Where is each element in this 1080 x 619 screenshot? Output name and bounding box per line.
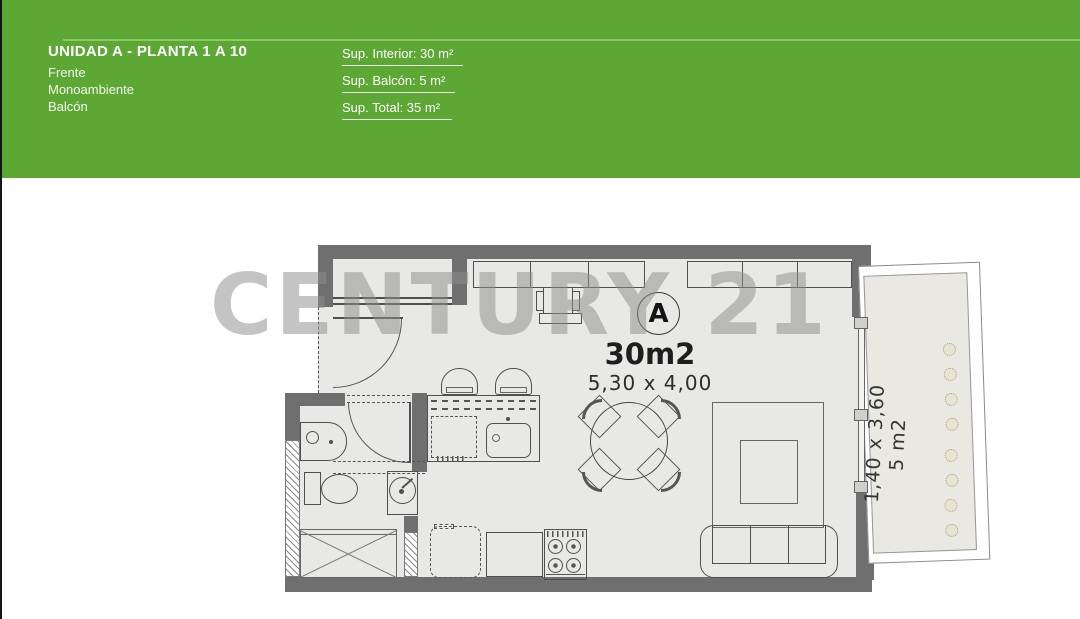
sofa-seat-divider — [788, 526, 789, 563]
coffee-table — [740, 440, 798, 504]
bidet-tap-dot — [329, 440, 333, 444]
feature-monoambiente: Monoambiente — [48, 81, 134, 98]
entry-boundary-dashed — [318, 307, 319, 393]
fridge-handle — [434, 524, 454, 529]
island-vent-grill — [437, 456, 464, 462]
unit-features: Frente Monoambiente Balcón — [48, 64, 134, 115]
stove-grate — [547, 531, 584, 537]
dining-table — [590, 402, 668, 480]
toilet-bowl — [321, 474, 358, 504]
wall-entry-left-stub — [318, 245, 333, 307]
wardrobe-divider — [530, 262, 531, 287]
desk-chair-armrest — [572, 291, 580, 311]
bath-doorway-dashed — [347, 395, 410, 396]
floor-plan-page: { "header": { "title": "UNIDAD A - PLANT… — [0, 0, 1080, 619]
header-banner — [0, 0, 1080, 178]
fridge-dashed — [430, 526, 481, 578]
stove-burner — [566, 539, 581, 554]
bar-stool-base — [446, 387, 473, 393]
wall-shower-stub — [404, 516, 418, 532]
desk-chair — [543, 287, 573, 314]
unit-title: UNIDAD A - PLANTA 1 A 10 — [48, 43, 247, 60]
desk — [539, 313, 582, 324]
wall-bath-top — [285, 393, 345, 406]
entry-header-line — [333, 303, 452, 305]
feature-frente: Frente — [48, 64, 134, 81]
island-dash-row — [431, 408, 536, 410]
interior-dimensions-label: 5,30 x 4,00 — [575, 371, 725, 395]
wardrobe-left — [473, 261, 645, 288]
entry-header-line — [333, 297, 452, 299]
wardrobe-divider — [588, 262, 589, 287]
kitchen-counter — [486, 532, 543, 577]
balcony-label: 1,40 x 3,60 5 m2 — [860, 375, 915, 513]
stove-burner — [566, 558, 581, 573]
unit-badge: A — [637, 292, 680, 335]
surface-areas: Sup. Interior: 30 m² Sup. Balcón: 5 m² S… — [342, 46, 463, 127]
sink-drain — [492, 434, 500, 442]
hall-boundary-dashed — [333, 461, 425, 462]
wall-bath-left-hatched — [285, 440, 300, 577]
wardrobe-right — [687, 261, 852, 288]
wardrobe-divider — [797, 262, 798, 287]
island-dash-row — [431, 400, 536, 402]
stove-burner — [548, 539, 563, 554]
desk-chair-armrest — [536, 291, 544, 311]
wall-shower-hatched — [404, 532, 418, 577]
header-divider-line — [63, 39, 1080, 41]
bidet-drain — [306, 431, 319, 444]
surface-balcony: Sup. Balcón: 5 m² — [342, 73, 455, 93]
window-mullion — [854, 317, 868, 329]
sink-faucet-dot — [506, 417, 510, 421]
sofa-seats — [712, 525, 826, 564]
wall-top — [318, 245, 866, 259]
dishwasher-dashed — [431, 416, 477, 458]
interior-area-label: 30m2 — [575, 337, 725, 371]
surface-total: Sup. Total: 35 m² — [342, 100, 452, 120]
toilet-tank — [304, 472, 321, 505]
wall-entry-pillar — [452, 259, 467, 305]
wardrobe-divider — [742, 262, 743, 287]
feature-balcon: Balcón — [48, 98, 134, 115]
surface-interior: Sup. Interior: 30 m² — [342, 46, 463, 66]
stove-inner-line — [546, 574, 585, 575]
washbasin-drain — [399, 489, 404, 494]
bath-door-leaf — [409, 402, 411, 463]
bar-stool-base — [500, 387, 527, 393]
sofa-seat-divider — [750, 526, 751, 563]
shower-inner-line — [300, 534, 397, 535]
stove-burner — [548, 558, 563, 573]
left-edge-strip — [0, 0, 2, 619]
